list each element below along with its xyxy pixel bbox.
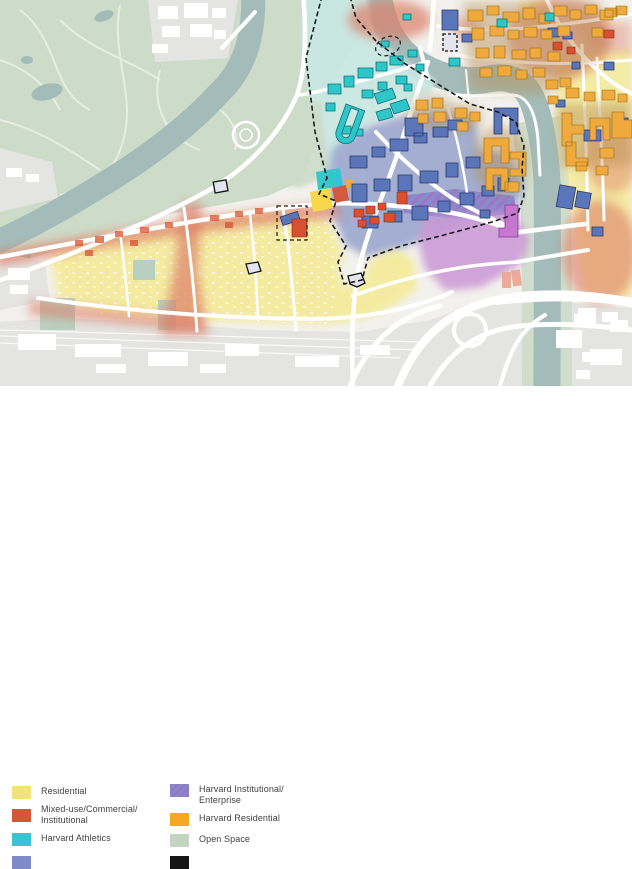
legend-item-mixed-use: Mixed-use/Commercial/ Institutional [12, 804, 138, 825]
campus-planning-map [0, 0, 632, 387]
map-legend: Residential Mixed-use/Commercial/ Instit… [0, 386, 632, 474]
legend-label-harvard-institutional: Harvard Institutional/ [199, 784, 284, 795]
legend-label-open-space: Open Space [199, 834, 250, 845]
legend-swatch-harvard-residential [170, 813, 189, 826]
legend-label-enterprise: Enterprise [199, 795, 284, 806]
legend-swatch-harvard-athletics [12, 833, 31, 846]
legend-label-mixed-use: Mixed-use/Commercial/ [41, 804, 138, 815]
legend-item-harvard-athletics: Harvard Athletics [12, 833, 111, 846]
legend-item-residential: Residential [12, 786, 87, 799]
legend-swatch-residential [12, 786, 31, 799]
legend-swatch-clipped-left [12, 856, 31, 869]
legend-label-mixed-use-2: Institutional [41, 815, 138, 826]
legend-swatch-mixed-use [12, 809, 31, 822]
study-parcel-1 [213, 180, 228, 193]
study-parcel-3 [246, 262, 261, 274]
legend-item-harvard-institutional-enterprise: Harvard Institutional/ Enterprise [170, 784, 284, 805]
legend-label-harvard-athletics: Harvard Athletics [41, 833, 111, 844]
study-parcel-2 [443, 34, 457, 51]
yellow-parcel [310, 188, 333, 212]
legend-swatch-harvard-institutional-enterprise [170, 784, 189, 797]
legend-item-open-space: Open Space [170, 834, 250, 847]
legend-item-harvard-residential: Harvard Residential [170, 813, 280, 826]
legend-label-harvard-residential: Harvard Residential [199, 813, 280, 824]
legend-label-residential: Residential [41, 786, 87, 797]
legend-item-clipped-right [170, 856, 189, 869]
map-canvas [0, 0, 632, 386]
legend-swatch-clipped-right [170, 856, 189, 869]
legend-item-clipped-left [12, 856, 31, 869]
legend-swatch-open-space [170, 834, 189, 847]
